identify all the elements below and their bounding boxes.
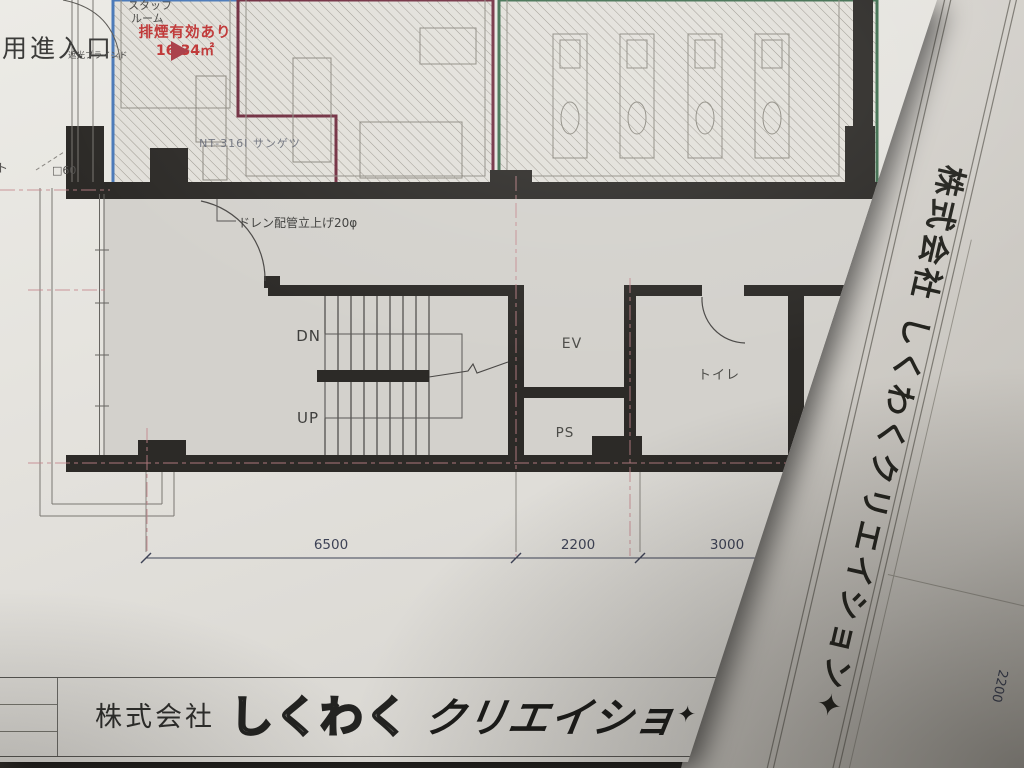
sparkle-icon: ✦ — [675, 702, 699, 728]
dimension-6500: 6500 — [314, 537, 348, 553]
hall-floor — [104, 194, 884, 456]
square-60-label: □60 — [52, 164, 76, 177]
toilet-label: トイレ — [698, 368, 740, 383]
title-block: 株式会社 しくわく クリエイショ✦ン — [0, 677, 1024, 757]
left-edge-partial-text: ト — [0, 161, 8, 175]
blind-label: 遮光ブラインド — [68, 50, 128, 61]
logo-brand-outline: しくわく — [230, 683, 410, 745]
carpet-product-note: NT-316I サンゲツ — [199, 137, 301, 150]
pipe-shaft-label: PS — [556, 425, 575, 441]
dimension-line: 6500 2200 3000 — [141, 472, 756, 563]
staff-room-label-2: ルーム — [131, 12, 164, 25]
smoke-exhaust-note: 排煙有効あり — [139, 23, 232, 41]
logo-brand-bold-end: ン — [693, 684, 745, 744]
title-block-table — [0, 678, 58, 756]
title-block-table-line — [0, 704, 57, 705]
logo-brand-bold-text: クリエイショ — [420, 684, 682, 744]
staff-room-label-1: スタッフ — [128, 0, 172, 12]
elevator-label: EV — [562, 336, 582, 352]
company-logo: 株式会社 しくわく クリエイショ✦ン — [95, 683, 739, 745]
logo-brand-bold: クリエイショ✦ン — [420, 684, 744, 744]
dimension-2200: 2200 — [561, 537, 595, 553]
stair-up-label: UP — [297, 409, 319, 427]
logo-company-prefix: 株式会社 — [95, 695, 215, 734]
photo-of-floor-plan: { "plan": { "labels": { "staff_room_line… — [0, 0, 1024, 768]
drain-pipe-note: ドレン配管立上げ20φ — [238, 215, 357, 230]
floor-plan-sheet: 6500 2200 3000 スタッフ ルーム 排煙有効あり 16.34㎡ NT… — [0, 0, 1024, 768]
title-block-table-line — [0, 731, 57, 732]
floor-plan-sheet-wrap: 6500 2200 3000 スタッフ ルーム 排煙有効あり 16.34㎡ NT… — [0, 0, 1024, 768]
stair-dn-label: DN — [296, 327, 321, 345]
dimension-3000: 3000 — [710, 537, 744, 553]
stair-landing-bar — [317, 370, 429, 382]
floor-plan-drawing: 6500 2200 3000 スタッフ ルーム 排煙有効あり 16.34㎡ NT… — [0, 0, 1024, 768]
